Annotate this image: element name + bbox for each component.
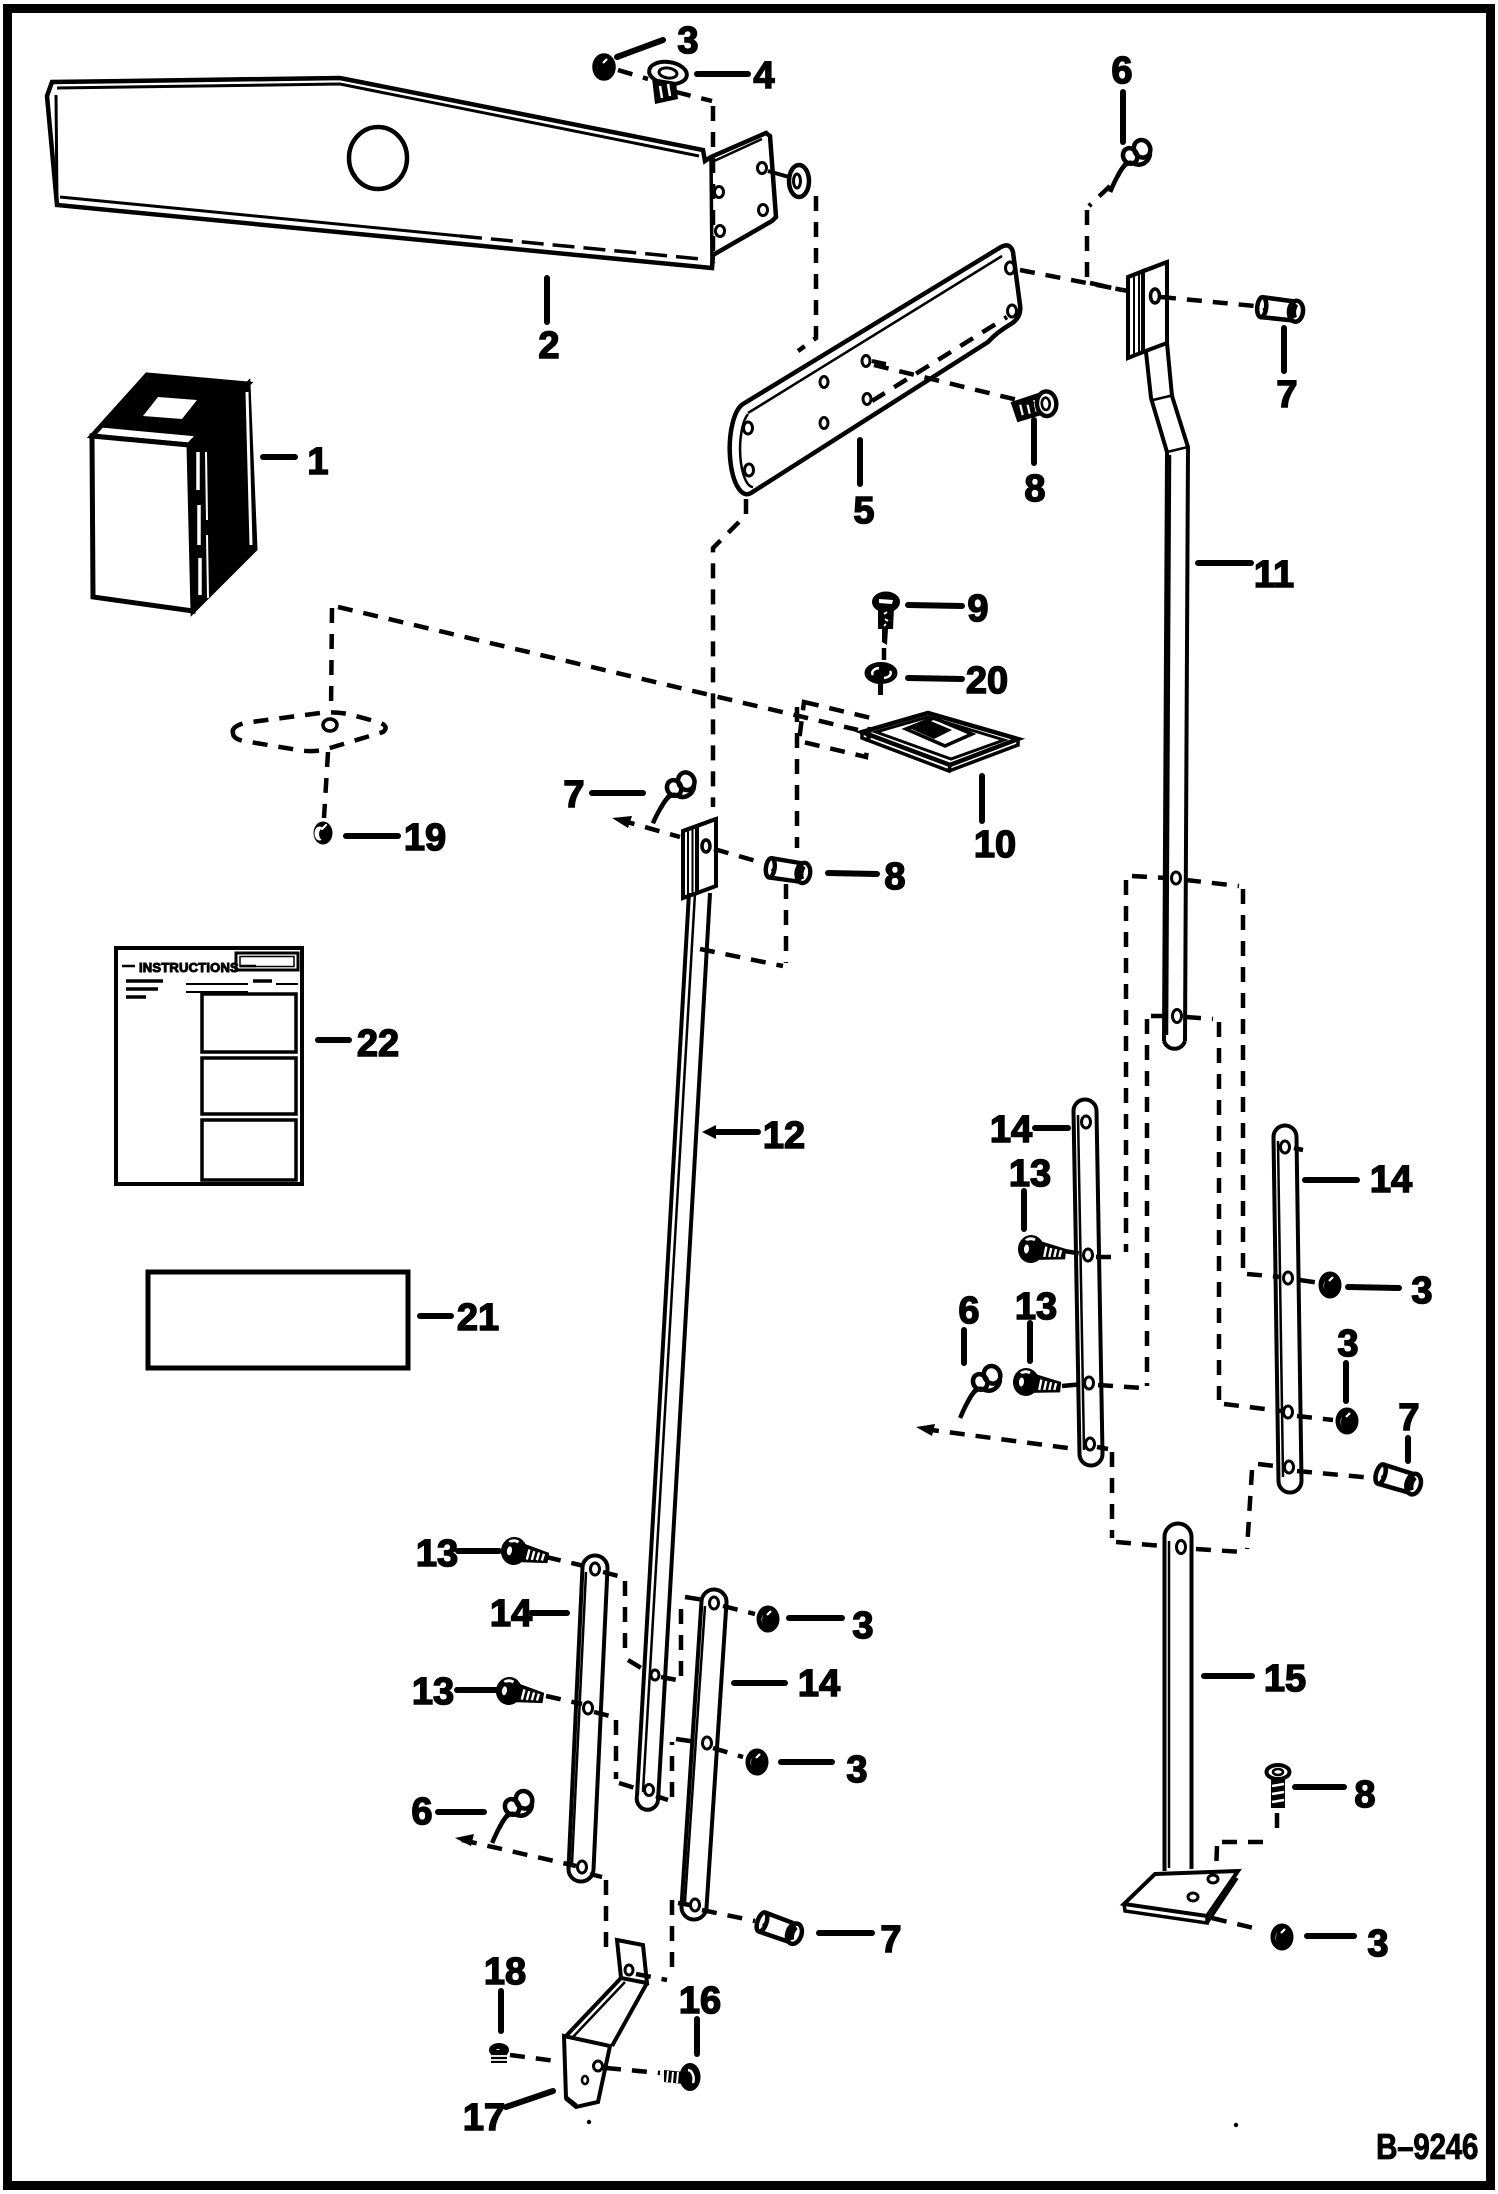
svg-text:15: 15 bbox=[1264, 1658, 1306, 1700]
svg-text:6: 6 bbox=[411, 1791, 432, 1833]
svg-text:12: 12 bbox=[763, 1115, 805, 1157]
svg-text:22: 22 bbox=[357, 1023, 399, 1065]
svg-text:1: 1 bbox=[307, 441, 328, 483]
svg-text:6: 6 bbox=[1111, 50, 1132, 92]
svg-text:13: 13 bbox=[1015, 1286, 1057, 1328]
svg-text:3: 3 bbox=[1337, 1323, 1358, 1365]
svg-text:5: 5 bbox=[853, 490, 874, 532]
svg-text:7: 7 bbox=[880, 1919, 901, 1961]
svg-text:B–9246: B–9246 bbox=[1376, 2126, 1478, 2167]
svg-text:7: 7 bbox=[563, 774, 584, 816]
svg-text:14: 14 bbox=[490, 1593, 532, 1635]
svg-text:2: 2 bbox=[538, 325, 559, 367]
svg-text:8: 8 bbox=[884, 856, 905, 898]
svg-text:9: 9 bbox=[967, 588, 988, 630]
svg-text:3: 3 bbox=[846, 1749, 867, 1791]
svg-text:6: 6 bbox=[958, 1290, 979, 1332]
svg-text:19: 19 bbox=[404, 817, 446, 859]
svg-text:3: 3 bbox=[1411, 1270, 1432, 1312]
svg-text:3: 3 bbox=[677, 20, 698, 62]
svg-text:14: 14 bbox=[990, 1109, 1032, 1151]
svg-text:7: 7 bbox=[1276, 374, 1297, 416]
svg-text:18: 18 bbox=[484, 1951, 526, 1993]
svg-text:14: 14 bbox=[1370, 1159, 1412, 1201]
svg-text:20: 20 bbox=[966, 660, 1008, 702]
svg-text:3: 3 bbox=[1367, 1923, 1388, 1965]
svg-text:10: 10 bbox=[974, 824, 1016, 866]
svg-text:13: 13 bbox=[1009, 1153, 1051, 1195]
svg-text:11: 11 bbox=[1254, 554, 1294, 596]
svg-text:8: 8 bbox=[1354, 1774, 1375, 1816]
svg-text:13: 13 bbox=[412, 1671, 454, 1713]
svg-text:8: 8 bbox=[1024, 468, 1045, 510]
svg-text:16: 16 bbox=[679, 1980, 721, 2022]
svg-text:14: 14 bbox=[798, 1663, 840, 1705]
svg-text:3: 3 bbox=[852, 1605, 873, 1647]
svg-text:17: 17 bbox=[463, 2097, 505, 2139]
svg-text:INSTRUCTIONS: INSTRUCTIONS bbox=[139, 960, 239, 975]
svg-text:13: 13 bbox=[416, 1533, 458, 1575]
svg-text:7: 7 bbox=[1398, 1397, 1419, 1439]
svg-text:21: 21 bbox=[457, 1297, 499, 1339]
svg-text:4: 4 bbox=[753, 55, 774, 97]
